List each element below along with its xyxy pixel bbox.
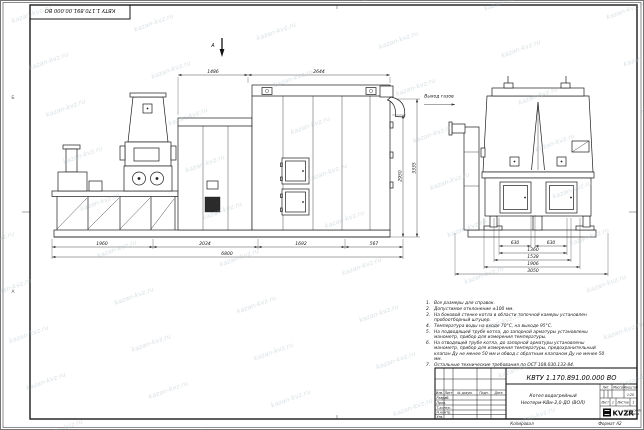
tb-hdr-doc: № докум. [456,391,472,395]
dim-1360: 1360 [527,247,539,253]
boiler-side-view [52,85,405,237]
front-lower-section [482,172,594,216]
dim-630-left: 630 [511,240,520,246]
dim-2034: 2034 [199,241,211,247]
tb-hdr-date: Дата [493,391,502,395]
furnace-hatch [205,197,220,212]
note-item: 6.На отводящей трубе котла, до запорной … [425,341,606,362]
dim-1906: 1906 [527,261,539,267]
footer-labels: Копировал Формат А2 [510,421,622,426]
dim-1486: 1486 [207,69,219,75]
tb-col-scale: Масштаб [623,386,638,390]
footer-format: Формат А2 [598,421,622,426]
tb-designation: КВТУ 1.170.891.00.000 ВО [527,374,617,382]
note-item: 4.Температура воды на входе 70°С, на вых… [425,324,606,329]
dim-630-right: 630 [547,240,556,246]
loading-hopper [120,93,176,191]
tb-col-mass: Масса [613,386,623,390]
dim-1538: 1538 [527,254,539,260]
tb-scale-value: 1:20 [627,393,634,397]
corner-stamp-text: КВТУ 1.170.891.00.000 ВО [45,7,116,13]
tb-product-name-2: Неотерм-КВм-2,0-ДО (ВОЛ) [521,400,586,406]
boiler-body-section [252,85,405,230]
note-item: 1.Все размеры для справок. [425,301,606,306]
tb-row-tcontrol: Т.контр. [437,406,451,410]
dim-2950: 2950 [398,170,404,182]
access-door-lower [281,189,310,215]
company-line-1: КАЗАНСКИЙ [625,408,641,413]
dim-567: 567 [370,241,379,247]
tb-row-ncontrol: Н.контр. [437,411,452,415]
note-item: 2.Допустимое отклонение ±100 мм. [425,307,606,312]
tb-row-checked: Пров. [437,401,447,405]
dim-1692: 1692 [295,241,307,247]
note-item: 5.На подводящей трубе котла, до запорной… [425,330,606,341]
dim-3050: 3050 [527,268,539,274]
section-arrow-label: А [210,43,215,49]
tb-row-approved: Утв. [437,415,444,419]
section-arrow: А [210,38,224,57]
technical-notes: 1.Все размеры для справок. 2.Допустимое … [425,301,606,369]
tb-hdr-izm: Изм. [436,391,443,395]
tb-col-lit: Лит. [601,386,609,390]
title-block: Изм. Лист № докум. Подп. Дата Разраб. Пр… [435,368,641,419]
footer-copied: Копировал [510,421,534,426]
tb-row-developed: Разраб. [437,396,450,400]
front-shell [481,76,593,172]
zone-letter-top: Б [11,95,14,101]
tb-sheets-label: Листов [616,400,629,404]
gas-outlet-label: Выход газов [424,94,454,100]
note-item: 7.Остальные технические требования по ОС… [425,363,606,368]
dim-2644: 2644 [313,69,325,75]
dim-6800: 6800 [221,251,233,257]
tb-sheet-label: Лист [600,400,609,404]
gas-outlet-callout: Выход газов [424,94,455,105]
company-line-2: ЗАВОД РФ [626,412,639,416]
company-logo: KVZR КАЗАНСКИЙ ЗАВОД РФ [603,408,641,418]
support-trestle [52,191,178,230]
side-duct [449,122,479,230]
tb-sheet-value: 1 [612,400,614,404]
access-door-upper [281,158,310,184]
furnace-section [178,118,252,230]
zone-letter-bottom: А [11,289,15,295]
corner-stamp: КВТУ 1.170.891.00.000 ВО [30,5,130,19]
tb-hdr-sign: Подп. [479,391,488,395]
drawing-sheet: Б А КВТУ 1.170.891.00.000 ВО [0,0,644,430]
tb-hdr-list: Лист [444,391,453,395]
dim-1960: 1960 [96,241,108,247]
dim-3335: 3335 [412,162,418,174]
boiler-front-view [449,76,596,237]
fuel-feeder-unit [58,145,102,191]
tb-product-name-1: Котел водогрейный [529,393,576,399]
note-item: 3.На боковой стенке котла в области топо… [425,313,606,324]
tb-sheets-value: 1 [633,400,635,404]
